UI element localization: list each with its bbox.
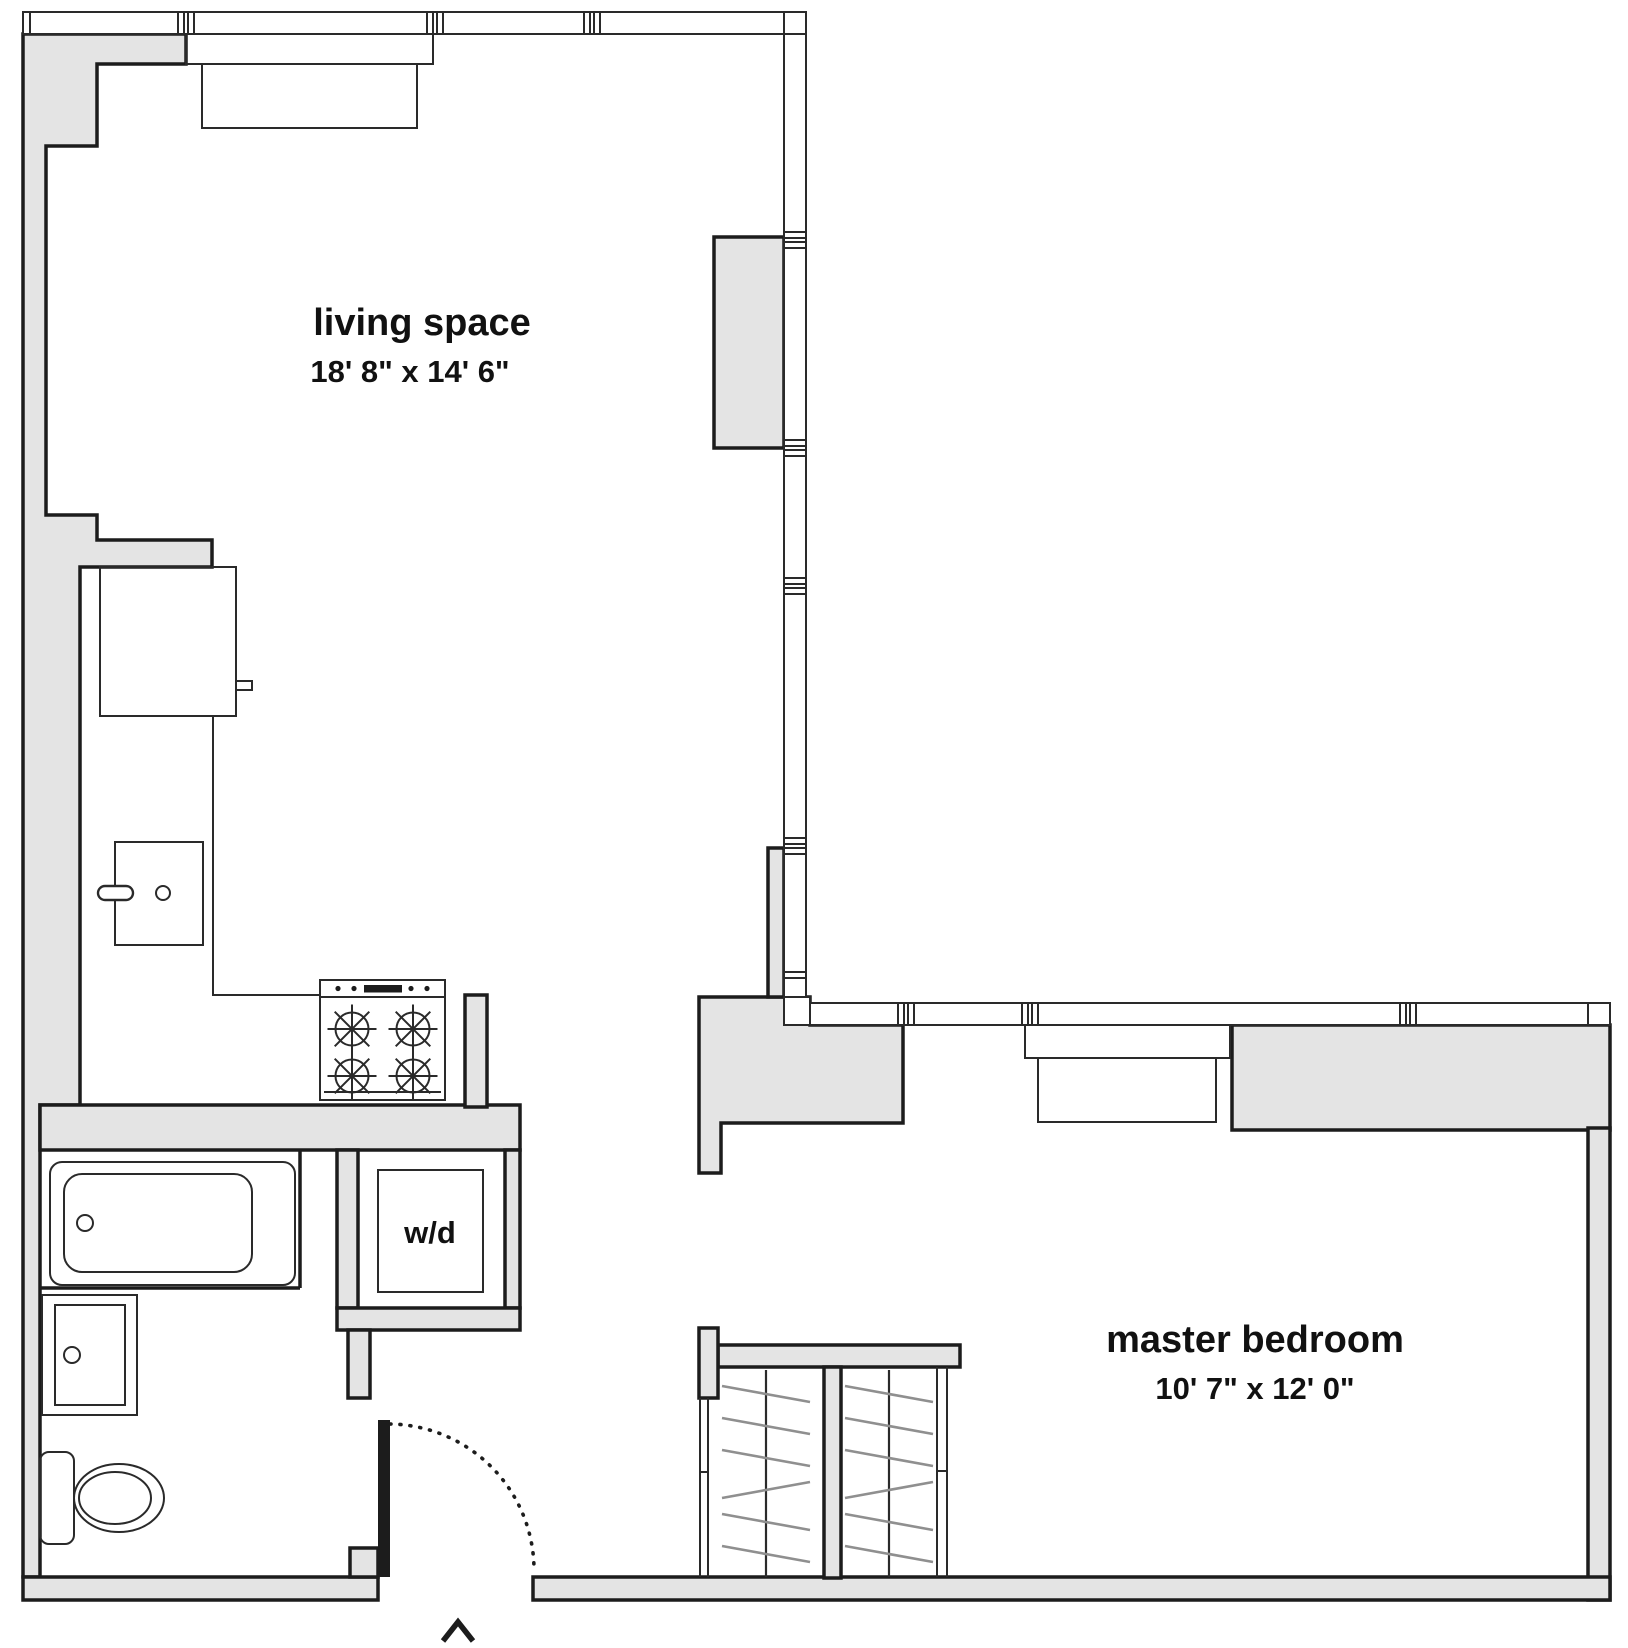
washer-dryer-label: w/d: [403, 1215, 456, 1250]
wall-closet-notch: [699, 1328, 718, 1398]
window-corner-block: [784, 997, 810, 1025]
wall-right: [1588, 1128, 1610, 1600]
cabinet-under-window-bedroom: [1038, 1058, 1216, 1122]
wall-left: [23, 34, 212, 1577]
burner-icon: [389, 1052, 438, 1101]
master-bedroom-dims: 10' 7" x 12' 0": [1155, 1371, 1354, 1406]
wall-bedroom-top-right: [1232, 1025, 1610, 1130]
windows: [23, 12, 1610, 1025]
refrigerator-handle-icon: [236, 681, 252, 690]
kitchen-sink-drain-icon: [156, 886, 170, 900]
bathroom: [40, 1150, 300, 1544]
kitchen: [98, 567, 445, 1101]
window-band-bedroom: [810, 1003, 1610, 1025]
floor-plan: living space 18' 8" x 14' 6": [0, 0, 1628, 1648]
wall-bottom-left: [23, 1577, 378, 1600]
wall-bottom-right: [533, 1577, 1610, 1600]
bathroom-vanity: [42, 1295, 137, 1415]
bathtub: [50, 1162, 295, 1285]
entry-door-swing-arc: [390, 1424, 534, 1570]
wall-entry-stub: [348, 1330, 370, 1398]
counter-edge: [213, 716, 320, 995]
walls: [23, 34, 1610, 1600]
living-space-label: living space: [313, 302, 531, 344]
entry-direction-chevron-icon: [443, 1622, 473, 1641]
closet-left-door: [700, 1398, 708, 1577]
wall-wd-bottom: [337, 1308, 520, 1330]
window-band-right: [784, 34, 806, 1003]
wall-kitchen-bath-divider: [40, 1105, 520, 1150]
bathroom-sink-drain-icon: [64, 1347, 80, 1363]
bathtub-drain-icon: [77, 1215, 93, 1231]
refrigerator: [100, 567, 236, 716]
wall-window-column: [714, 237, 784, 448]
wall-closet-top-bar: [718, 1345, 960, 1367]
living-space: living space 18' 8" x 14' 6": [186, 34, 531, 389]
burner-icon: [328, 1052, 377, 1101]
washer-dryer-closet: w/d: [378, 1170, 483, 1292]
wall-wd-left: [337, 1150, 358, 1308]
window-radiator-living: [186, 34, 433, 64]
stove: [320, 980, 445, 1101]
wall-door-jamb-notch: [350, 1548, 378, 1577]
cabinet-under-window-living: [202, 64, 417, 128]
kitchen-faucet-icon: [98, 886, 133, 900]
window-radiator-bedroom: [1025, 1025, 1230, 1058]
closet-right-door: [937, 1367, 947, 1577]
master-bedroom-label: master bedroom: [1106, 1319, 1404, 1361]
burner-icon: [389, 1005, 438, 1054]
toilet-seat: [79, 1472, 151, 1524]
entry-door-leaf: [378, 1420, 390, 1577]
wall-wd-right: [505, 1150, 520, 1308]
entry: [378, 1420, 534, 1641]
wall-right-of-stove: [465, 995, 487, 1107]
bathroom-sink: [55, 1305, 125, 1405]
living-space-dims: 18' 8" x 14' 6": [310, 354, 509, 389]
wall-closet-stem: [824, 1367, 841, 1578]
floor-plan-page: living space 18' 8" x 14' 6": [0, 0, 1628, 1648]
toilet-tank: [40, 1452, 74, 1544]
window-band-top: [23, 12, 806, 34]
burner-icon: [328, 1005, 377, 1054]
wall-window-strip: [768, 848, 784, 997]
